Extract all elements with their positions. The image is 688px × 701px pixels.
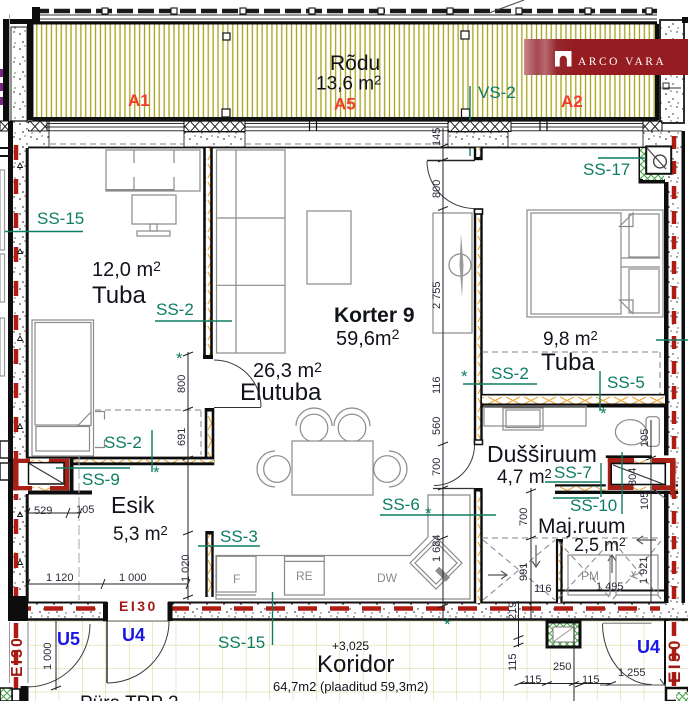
svg-text:115: 115 (582, 674, 600, 686)
svg-text:1 495: 1 495 (596, 581, 624, 593)
svg-text:SS-9: SS-9 (82, 470, 120, 489)
svg-text:59,6m2: 59,6m2 (336, 326, 400, 350)
svg-text:105: 105 (639, 429, 651, 447)
svg-text:Rõdu: Rõdu (330, 52, 380, 75)
svg-text:64,7m2 (plaaditud 59,3m2): 64,7m2 (plaaditud 59,3m2) (273, 679, 428, 694)
svg-text:U4: U4 (637, 637, 660, 657)
svg-text:*: * (425, 504, 432, 523)
svg-text:Tuba: Tuba (92, 282, 146, 309)
svg-text:SS-7: SS-7 (554, 463, 592, 482)
svg-text:2,5 m2: 2,5 m2 (574, 535, 626, 555)
svg-text:991: 991 (518, 563, 530, 581)
svg-text:+3,025: +3,025 (332, 639, 369, 653)
svg-text:EI30: EI30 (665, 638, 684, 683)
svg-text:U5: U5 (57, 629, 80, 649)
svg-text:SS-17: SS-17 (583, 160, 630, 179)
svg-text:A2: A2 (561, 92, 583, 111)
svg-text:1 000: 1 000 (42, 642, 54, 670)
svg-text:U4: U4 (122, 625, 145, 645)
svg-text:1 684: 1 684 (431, 534, 443, 562)
svg-text:A1: A1 (128, 91, 150, 110)
svg-text:304: 304 (627, 468, 639, 486)
svg-text:SS-10: SS-10 (570, 496, 617, 515)
svg-text:560: 560 (431, 417, 443, 435)
svg-text:SS-2: SS-2 (104, 433, 142, 452)
svg-text:700: 700 (431, 458, 443, 476)
svg-text:SS-3: SS-3 (220, 527, 258, 546)
svg-text:A5: A5 (334, 95, 356, 114)
svg-text:1 255: 1 255 (618, 667, 646, 679)
svg-text:*: * (444, 615, 451, 634)
svg-text:800: 800 (176, 375, 188, 393)
svg-text:800: 800 (431, 180, 443, 198)
svg-text:691: 691 (176, 428, 188, 446)
svg-text:SS-5: SS-5 (607, 373, 645, 392)
svg-text:Korter 9: Korter 9 (334, 304, 415, 327)
svg-text:Tuba: Tuba (541, 349, 595, 376)
svg-text:SS-6: SS-6 (382, 495, 420, 514)
svg-text:SS-15: SS-15 (37, 209, 84, 228)
svg-text:EI30: EI30 (9, 636, 26, 677)
svg-text:13,6 m2: 13,6 m2 (316, 73, 381, 95)
svg-text:1 020: 1 020 (180, 554, 192, 582)
svg-text:SS-2: SS-2 (491, 364, 529, 383)
svg-text:Püra TRP 2: Püra TRP 2 (80, 693, 179, 701)
svg-text:5,3 m2: 5,3 m2 (113, 523, 168, 545)
svg-text:*: * (461, 367, 468, 386)
svg-text:Koridor: Koridor (317, 651, 394, 678)
svg-text:115: 115 (524, 674, 542, 686)
svg-text:116: 116 (431, 376, 443, 394)
svg-text:DW: DW (377, 571, 398, 585)
svg-text:9,8 m2: 9,8 m2 (543, 328, 598, 350)
svg-text:219: 219 (507, 602, 519, 620)
svg-text:VS-2: VS-2 (478, 83, 516, 102)
svg-text:12,0 m2: 12,0 m2 (92, 258, 161, 281)
svg-text:105: 105 (639, 492, 651, 510)
svg-text:Elutuba: Elutuba (240, 379, 322, 406)
svg-text:2 755: 2 755 (431, 281, 443, 309)
svg-text:*: * (176, 349, 183, 368)
svg-text:*: * (153, 463, 160, 482)
svg-text:Esik: Esik (111, 492, 155, 518)
svg-text:RE: RE (296, 569, 313, 583)
svg-text:115: 115 (507, 653, 519, 671)
svg-text:250: 250 (553, 661, 571, 673)
svg-text:SS-15: SS-15 (218, 633, 265, 652)
svg-text:1 921: 1 921 (638, 556, 650, 584)
svg-text:700: 700 (518, 508, 530, 526)
svg-text:EI30: EI30 (119, 598, 158, 614)
svg-text:145: 145 (431, 128, 443, 146)
svg-text:105: 105 (76, 504, 94, 516)
svg-text:1 000: 1 000 (119, 572, 147, 584)
svg-text:ARCO VARA: ARCO VARA (578, 56, 666, 68)
svg-text:SS-2: SS-2 (156, 300, 194, 319)
svg-text:529: 529 (34, 505, 52, 517)
svg-text:116: 116 (534, 583, 552, 595)
svg-text:F: F (233, 572, 240, 586)
svg-text:*: * (600, 404, 607, 423)
svg-text:1 120: 1 120 (46, 572, 74, 584)
svg-text:4,7 m2: 4,7 m2 (497, 466, 552, 488)
